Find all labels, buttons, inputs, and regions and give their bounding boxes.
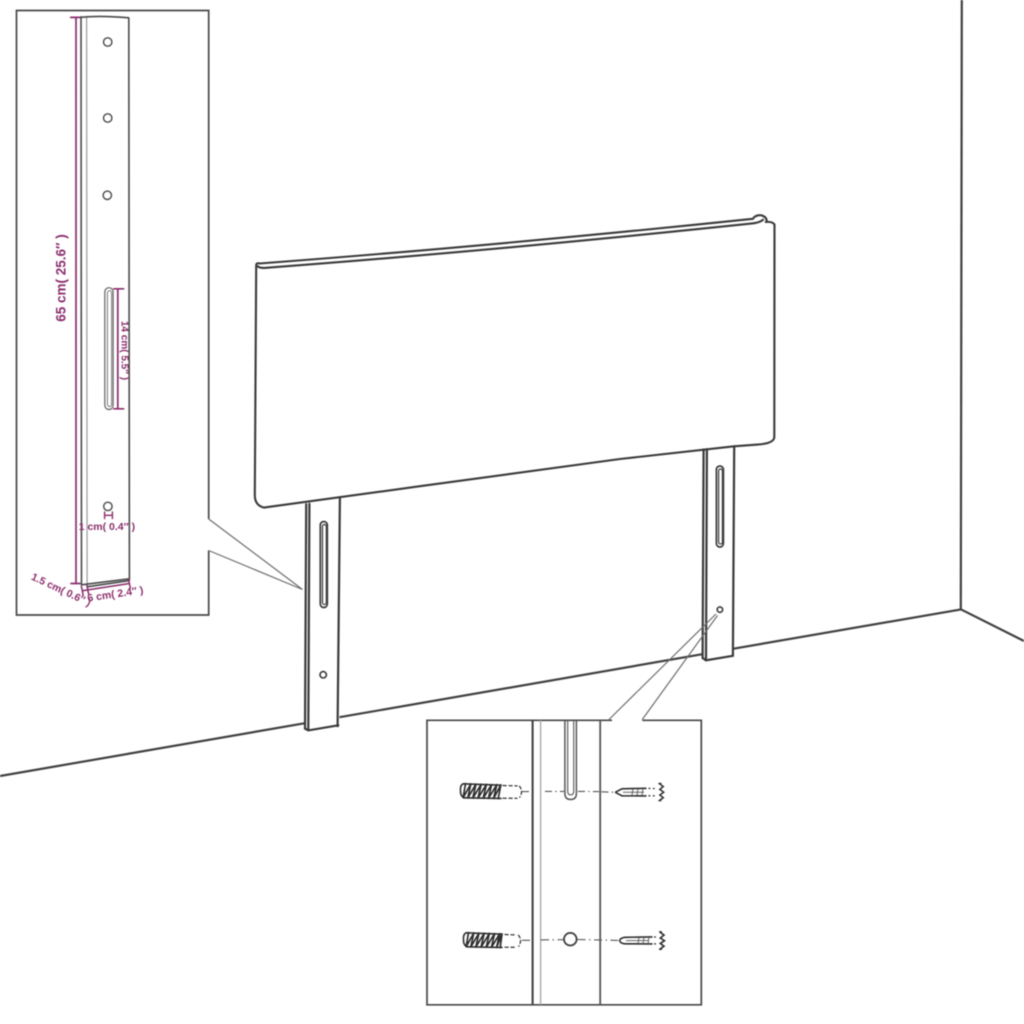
svg-text:14 cm( 5.5″ ): 14 cm( 5.5″ ): [119, 321, 130, 380]
svg-text:6 cm( 2.4″ ): 6 cm( 2.4″ ): [87, 584, 145, 604]
svg-text:1 cm( 0.4″ ): 1 cm( 0.4″ ): [79, 521, 135, 533]
svg-text:65 cm( 25.6″ ): 65 cm( 25.6″ ): [54, 234, 69, 322]
